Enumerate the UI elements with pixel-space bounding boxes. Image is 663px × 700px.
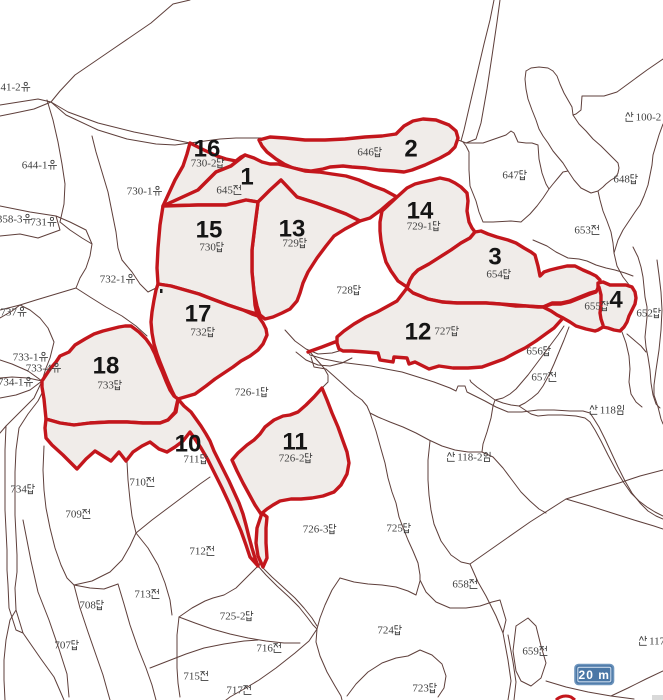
svg-text:654: 654: [486, 269, 503, 281]
svg-text:657: 657: [531, 372, 548, 384]
svg-text:1: 1: [240, 164, 253, 191]
svg-text:4: 4: [609, 287, 623, 314]
svg-text:653: 653: [574, 225, 591, 237]
svg-text:732: 732: [190, 327, 207, 339]
svg-text:2: 2: [404, 136, 417, 163]
svg-text:11: 11: [282, 429, 307, 456]
svg-text:732-1: 732-1: [100, 274, 126, 286]
svg-text:18: 18: [93, 353, 120, 380]
svg-text:716: 716: [256, 643, 273, 655]
svg-text:20 m: 20 m: [579, 668, 610, 682]
svg-text:117: 117: [649, 636, 663, 648]
svg-text:726-3: 726-3: [303, 524, 329, 536]
svg-text:725: 725: [386, 523, 403, 535]
svg-text:728: 728: [336, 285, 353, 297]
svg-text:733: 733: [97, 380, 114, 392]
svg-text:100-2: 100-2: [636, 112, 662, 124]
svg-text:734: 734: [10, 484, 27, 496]
svg-text:658: 658: [452, 579, 469, 591]
svg-text:655: 655: [584, 301, 601, 313]
svg-text:717: 717: [226, 685, 243, 697]
svg-text:648: 648: [613, 174, 630, 186]
svg-text:14: 14: [407, 198, 434, 225]
svg-text:118: 118: [600, 405, 617, 417]
svg-text:723: 723: [412, 683, 429, 695]
svg-text:730: 730: [199, 242, 216, 254]
svg-text:724: 724: [377, 625, 394, 637]
svg-text:41-2: 41-2: [1, 82, 21, 94]
svg-text:707: 707: [54, 640, 71, 652]
svg-text:3: 3: [488, 244, 501, 271]
svg-text:15: 15: [196, 217, 223, 244]
svg-text:733-4: 733-4: [26, 363, 52, 375]
svg-text:647: 647: [502, 170, 519, 182]
svg-text:710: 710: [129, 477, 146, 489]
svg-text:715: 715: [183, 671, 200, 683]
svg-text:725-2: 725-2: [220, 611, 246, 623]
svg-text:709: 709: [65, 509, 82, 521]
svg-text:737: 737: [0, 307, 17, 319]
svg-text:118-2: 118-2: [457, 452, 482, 464]
svg-text:13: 13: [279, 216, 306, 243]
svg-text:727: 727: [434, 326, 451, 338]
svg-text:10: 10: [175, 431, 202, 458]
svg-text:645: 645: [216, 185, 233, 197]
svg-text:652: 652: [636, 308, 653, 320]
svg-text:12: 12: [405, 319, 432, 346]
svg-text:358-3: 358-3: [0, 214, 23, 226]
svg-text:708: 708: [79, 600, 96, 612]
svg-text:659: 659: [522, 646, 539, 658]
svg-text:17: 17: [185, 301, 212, 328]
svg-text:656: 656: [526, 346, 543, 358]
svg-text:713: 713: [134, 589, 151, 601]
svg-text:644-1: 644-1: [22, 160, 48, 172]
svg-text:731: 731: [30, 217, 47, 229]
svg-text:730-1: 730-1: [127, 186, 153, 198]
svg-text:734-1: 734-1: [0, 377, 23, 389]
svg-text:16: 16: [194, 136, 221, 163]
svg-text:646: 646: [357, 147, 374, 159]
svg-text:726-1: 726-1: [235, 387, 261, 399]
svg-text:712: 712: [189, 546, 206, 558]
